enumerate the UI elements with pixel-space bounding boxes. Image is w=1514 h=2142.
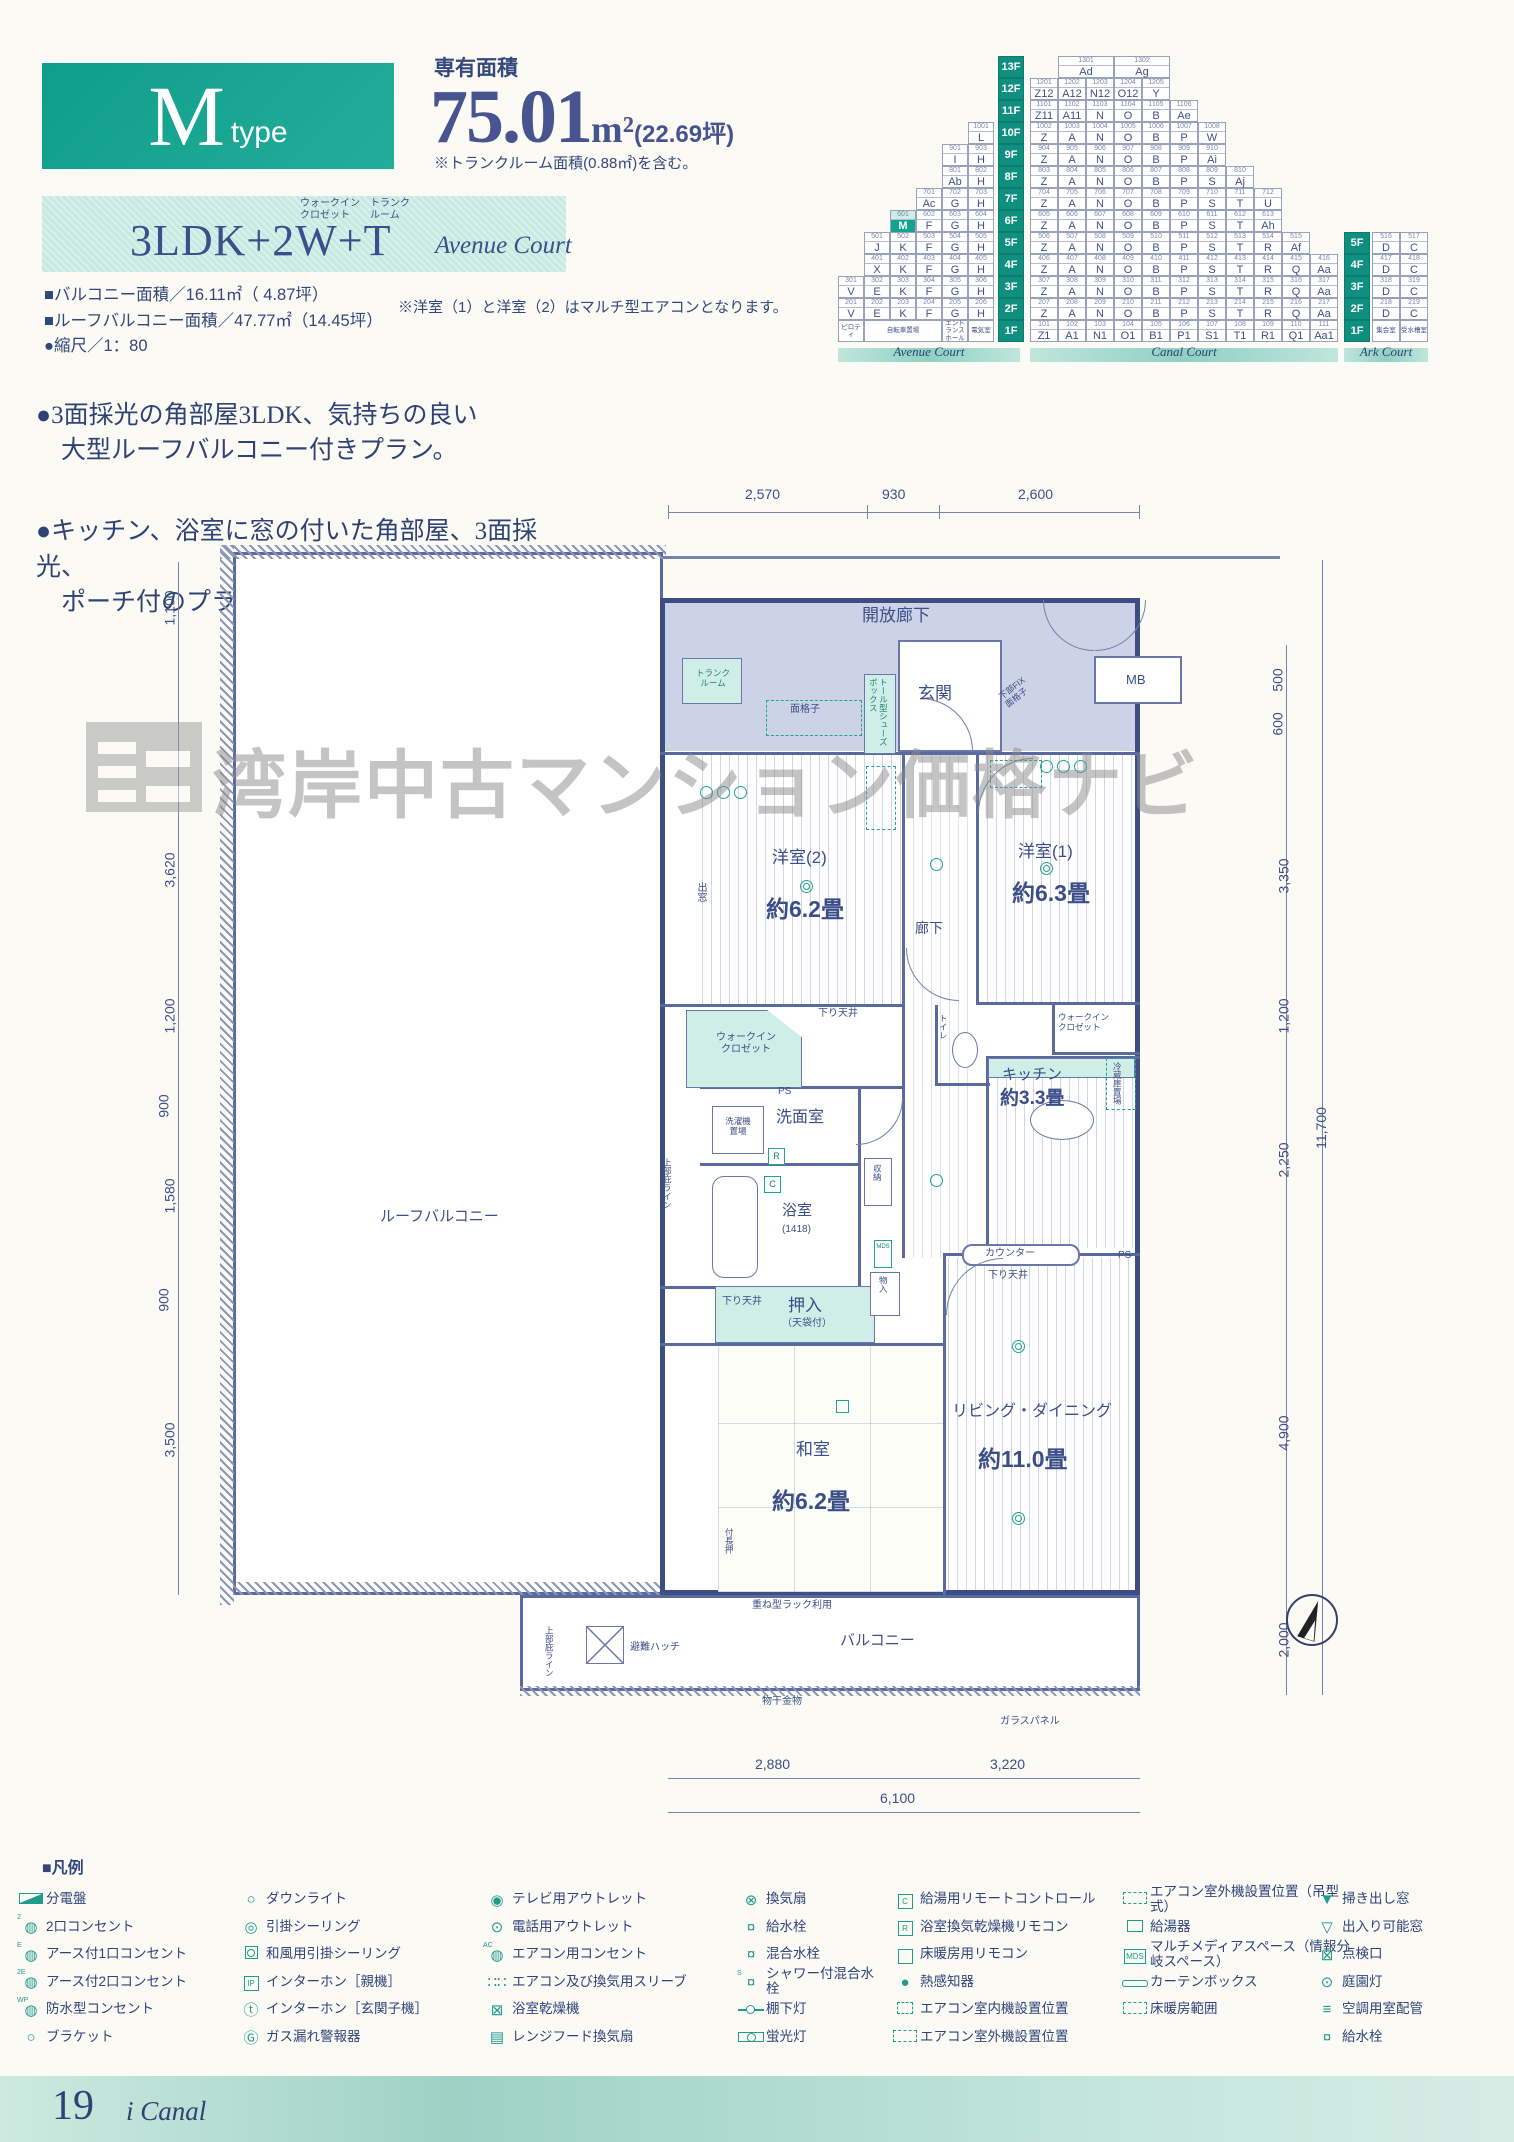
legend-item: ¤給水栓 <box>1312 2024 1452 2052</box>
legend-item: ◎引掛シーリング <box>236 1914 474 1942</box>
legend-item: C給湯用リモートコントロール <box>890 1886 1115 1914</box>
unit-cell-710: 710S <box>1198 188 1226 210</box>
roof-balcony-wall-hatch <box>220 545 234 1605</box>
unit-cell-605: 605Z <box>1030 210 1058 232</box>
label-bedroom2: 洋室(2) <box>772 848 827 868</box>
bathfan-remote-box: R <box>768 1148 785 1165</box>
bathtub <box>712 1176 758 1278</box>
hinan-hatch-box <box>586 1626 624 1664</box>
legend-item: ◍22口コンセント <box>16 1914 226 1942</box>
dim-top-2: 2,600 <box>1018 486 1053 502</box>
unit-cell-410: 410B <box>1142 254 1170 276</box>
legend-item-label: エアコン及び換気用スリーブ <box>512 1975 687 1990</box>
banner-court-label: Avenue Court <box>435 232 572 260</box>
unit-cell-606: 606A <box>1058 210 1086 232</box>
ground-cell: エントランス ホール <box>942 320 968 342</box>
dim-left-2: 1,200 <box>162 998 178 1033</box>
unit-cell-1302: 1302Ag <box>1114 56 1170 78</box>
unit-cell-1301: 1301Ad <box>1058 56 1114 78</box>
hotwater-remote-box: C <box>764 1176 781 1193</box>
legend-item-label: 庭園灯 <box>1342 1975 1383 1990</box>
label-corridor: 廊下 <box>915 920 943 937</box>
inspection-port-icon: ⊠ <box>1312 1946 1342 1964</box>
unit-cell-417: 417D <box>1372 254 1400 276</box>
legend-item: 分電盤 <box>16 1886 226 1914</box>
legend-item-label: ガス漏れ警報器 <box>266 2030 361 2045</box>
unit-cell-304: 304F <box>916 276 942 298</box>
unit-cell-1002: 1002Z <box>1030 122 1058 144</box>
legend-item-label: 和風用引掛シーリング <box>266 1947 401 1962</box>
label-rack-note: 重ね型ラック利用 <box>752 1600 832 1612</box>
unit-cell-301: 301V <box>838 276 864 298</box>
label-trunk-room: トランク ルーム <box>688 668 738 688</box>
unit-cell-206: 206H <box>968 298 994 320</box>
legend-item: ¤混合水栓 <box>736 1941 884 1969</box>
unit-cell-312: 312P <box>1170 276 1198 298</box>
legend-item-label: ダウンライト <box>266 1892 347 1907</box>
label-menkoshi: 面格子 <box>790 704 820 716</box>
outlet-wp-icon: ◍WP <box>16 2001 46 2019</box>
unit-cell-509: 509O <box>1114 232 1142 254</box>
legend-item-label: カーテンボックス <box>1150 1975 1258 1990</box>
unit-cell-512: 512S <box>1198 232 1226 254</box>
bathfan-remote-icon: R <box>890 1918 920 1936</box>
legend-item-label: 出入り可能窓 <box>1342 1920 1423 1935</box>
distribution-board-icon <box>16 1891 46 1908</box>
legend-column-3: ◉テレビ用アウトレット⊙電話用アウトレット◍ACエアコン用コンセント∷∷エアコン… <box>482 1886 730 2051</box>
ac-pipe-icon: ≡ <box>1312 2001 1342 2018</box>
legend-item-label: 換気扇 <box>766 1892 807 1907</box>
unit-cell-411: 411P <box>1170 254 1198 276</box>
label-genkan: 玄関 <box>918 684 952 704</box>
legend-item: ¤Sシャワー付混合水栓 <box>736 1969 884 1997</box>
floor-label-2F: 2F <box>998 298 1024 320</box>
unit-cell-1101: 1101Z11 <box>1030 100 1058 122</box>
unit-type-box: M type <box>42 63 394 169</box>
unit-cell-109: 109R1 <box>1254 320 1282 342</box>
shelf-light-icon <box>736 2001 766 2018</box>
unit-cell-502: 502K <box>890 232 916 254</box>
legend-item-label: レンジフード換気扇 <box>512 2030 634 2045</box>
unit-cell-505: 505H <box>968 232 994 254</box>
legend-item: ⓣインターホン［玄関子機］ <box>236 1996 474 2024</box>
unit-cell-907: 907O <box>1114 144 1142 166</box>
unit-cell-209: 209N <box>1086 298 1114 320</box>
unit-cell-607: 607N <box>1086 210 1114 232</box>
unit-cell-108: 108T1 <box>1226 320 1254 342</box>
legend-item-label: 空調用室配管 <box>1342 2002 1423 2017</box>
water-tap2-icon: ¤ <box>1312 2029 1342 2046</box>
legend-item-label: ブラケット <box>46 2030 114 2045</box>
dim-left-5: 900 <box>156 1288 172 1311</box>
unit-cell-318: 318D <box>1372 276 1400 298</box>
mds-box: MDS <box>874 1240 892 1268</box>
ground-cell: 自転車置場 <box>864 320 942 342</box>
sweep-window-icon: ▼ <box>1312 1891 1342 1908</box>
outlet-e2-icon: ◍2E <box>16 1973 46 1991</box>
unit-cell-516: 516D <box>1372 232 1400 254</box>
label-oshiire-note: （天袋付） <box>782 1318 832 1330</box>
ground-cell: 電気室 <box>968 320 994 342</box>
bath-dryer-icon: ⊠ <box>482 2001 512 2019</box>
unit-cell-506: 506Z <box>1030 232 1058 254</box>
trunk-area-note: ※トランクルーム面積(0.88㎡)を含む。 <box>434 152 697 173</box>
legend-column-2: ○ダウンライト◎引掛シーリング和風用引掛シーリングIPインターホン［親機］ⓣイン… <box>236 1886 474 2051</box>
shower-mixing-tap-icon: ¤S <box>736 1974 766 1991</box>
unit-cell-215: 215R <box>1254 298 1282 320</box>
unit-cell-706: 706N <box>1086 188 1114 210</box>
unit-cell-708: 708B <box>1142 188 1170 210</box>
label-sagari-2: 下り天井 <box>722 1296 762 1308</box>
unit-cell-202: 202E <box>864 298 890 320</box>
area-details: ■バルコニー面積／16.11㎡（ 4.87坪） ■ルーフバルコニー面積／47.7… <box>44 283 383 360</box>
plan-type-text: 3LDK+2W+T <box>130 215 391 266</box>
unit-cell-307: 307Z <box>1030 276 1058 298</box>
ac-outlet-icon: ◍AC <box>482 1946 512 1964</box>
bracket-light-icon: ○ <box>16 2029 46 2046</box>
dim-top-1: 930 <box>882 486 905 502</box>
unit-cell-406: 406Z <box>1030 254 1058 276</box>
unit-cell-802: 802H <box>968 166 994 188</box>
legend-item: ◍2Eアース付2口コンセント <box>16 1969 226 1997</box>
unit-cell-604: 604H <box>968 210 994 232</box>
legend-column-4: ⊗換気扇¤給水栓¤混合水栓¤Sシャワー付混合水栓棚下灯蛍光灯 <box>736 1886 884 2051</box>
label-kitchen-size: 約3.3畳 <box>1000 1088 1064 1111</box>
unit-cell-901: 901I <box>942 144 968 166</box>
unit-cell-705: 705A <box>1058 188 1086 210</box>
watermark-text: 湾岸中古マンション価格ナビ <box>212 726 1200 833</box>
legend-item-label: 混合水栓 <box>766 1947 820 1962</box>
floor-label-8F: 8F <box>998 166 1024 188</box>
label-sagari-1: 下り天井 <box>818 1008 858 1020</box>
legend: ■凡例 分電盤◍22口コンセント◍Eアース付1口コンセント◍2Eアース付2口コン… <box>0 1850 1514 2060</box>
unit-cell-415: 415Q <box>1282 254 1310 276</box>
label-balcony: バルコニー <box>840 1632 915 1650</box>
court-label-canal: Canal Court <box>1030 348 1338 362</box>
legend-item: ◍Eアース付1口コンセント <box>16 1941 226 1969</box>
unit-cell-906: 906N <box>1086 144 1114 166</box>
legend-item: ◍ACエアコン用コンセント <box>482 1941 730 1969</box>
legend-item-label: シャワー付混合水栓 <box>766 1967 884 1997</box>
rangehood-fan-icon: ▤ <box>482 2028 512 2046</box>
legend-item: ¤給水栓 <box>736 1914 884 1942</box>
legend-item-label: インターホン［玄関子機］ <box>266 2002 428 2017</box>
washitsu-floor <box>718 1346 943 1592</box>
unit-cell-203: 203K <box>890 298 916 320</box>
fan-icon: ⊗ <box>736 1891 766 1909</box>
unit-cell-904: 904Z <box>1030 144 1058 166</box>
unit-cell-1005: 1005O <box>1114 122 1142 144</box>
dim-bottom-1: 3,220 <box>990 1756 1025 1772</box>
dim-right-3: 1,200 <box>1276 998 1292 1033</box>
unit-cell-409: 409O <box>1114 254 1142 276</box>
ruby-walkin-closet: ウォークイン クロゼット <box>300 198 360 221</box>
tv-outlet-icon: ◉ <box>482 1891 512 1909</box>
unit-cell-414: 414R <box>1254 254 1282 276</box>
gas-alarm-icon: Ⓖ <box>236 2027 266 2048</box>
unit-cell-309: 309N <box>1086 276 1114 298</box>
legend-item-label: エアコン室外機設置位置 <box>920 2030 1069 2045</box>
legend-title: ■凡例 <box>42 1854 84 1878</box>
outlet-2-icon: ◍2 <box>16 1918 46 1936</box>
unit-cell-210: 210O <box>1114 298 1142 320</box>
unit-cell-803: 803Z <box>1030 166 1058 188</box>
ruby-trunk-room: トランク ルーム <box>370 198 410 221</box>
unit-cell-905: 905A <box>1058 144 1086 166</box>
legend-item: 床暖房用リモコン <box>890 1941 1115 1969</box>
unit-cell-308: 308A <box>1058 276 1086 298</box>
unit-cell-910: 910Ai <box>1198 144 1226 166</box>
label-hinan-hatch: 避難ハッチ <box>630 1642 680 1654</box>
page-number: 19 <box>52 2082 94 2130</box>
feature-bullet-1: ●3面採光の角部屋3LDK、気持ちの良い 大型ルーフバルコニー付きプラン。 <box>36 398 576 469</box>
unit-cell-517: 517C <box>1400 232 1428 254</box>
label-washitsu: 和室 <box>796 1440 830 1460</box>
unit-cell-601: 601M <box>890 210 916 232</box>
label-bath-size: (1418) <box>782 1224 811 1236</box>
legend-item-label: 給湯器 <box>1150 1920 1191 1935</box>
dim-left-4: 1,580 <box>162 1178 178 1213</box>
ac-sleeve-icon: ∷∷ <box>482 1973 512 1991</box>
heat-sensor-icon: ● <box>890 1974 920 1991</box>
building-position-grid: 13F12F11F10F9F8F7F6F5F4F3F2F1F1001L901I9… <box>812 56 1472 392</box>
unit-cell-903: 903H <box>968 144 994 166</box>
label-ps-2: PS <box>1118 1250 1131 1262</box>
legend-item: ○ブラケット <box>16 2024 226 2052</box>
unit-type-word: type <box>231 116 288 150</box>
area-number: 75.01 <box>430 75 591 159</box>
label-kitchen: キッチン <box>1002 1066 1062 1084</box>
label-wic-left: ウォークイン クロゼット <box>706 1032 786 1056</box>
legend-column-1: 分電盤◍22口コンセント◍Eアース付1口コンセント◍2Eアース付2口コンセント◍… <box>16 1886 226 2051</box>
label-wic-right: ウォークイン クロゼット <box>1058 1012 1109 1032</box>
unit-cell-808: 808P <box>1170 166 1198 188</box>
legend-item-label: 蛍光灯 <box>766 2030 807 2045</box>
legend-item: ⊙電話用アウトレット <box>482 1914 730 1942</box>
legend-item-label: 浴室換気乾燥機リモコン <box>920 1920 1069 1935</box>
unit-cell-310: 310O <box>1114 276 1142 298</box>
legend-item: ∷∷エアコン及び換気用スリーブ <box>482 1969 730 1997</box>
unit-cell-204: 204F <box>916 298 942 320</box>
unit-cell-909: 909P <box>1170 144 1198 166</box>
label-shuno: 収納 <box>872 1164 882 1181</box>
dim-left-3: 900 <box>156 1094 172 1117</box>
unit-cell-216: 216Q <box>1282 298 1310 320</box>
roof-balcony-wall-hatch-bottom <box>233 1582 663 1595</box>
unit-cell-806: 806O <box>1114 166 1142 188</box>
ceiling-hook-jp-icon <box>236 1946 266 1963</box>
unit-cell-908: 908B <box>1142 144 1170 166</box>
label-monoire: 物入 <box>878 1276 888 1293</box>
legend-item: ▤レンジフード換気扇 <box>482 2024 730 2052</box>
ac-outdoor-pos-icon <box>890 2029 920 2046</box>
legend-column-7: ▼掃き出し窓▽出入り可能窓⊠点検口⊙庭園灯≡空調用室配管¤給水栓 <box>1312 1886 1452 2051</box>
label-living-size: 約11.0畳 <box>978 1446 1068 1474</box>
legend-item: ⊗換気扇 <box>736 1886 884 1914</box>
unit-cell-305: 305G <box>942 276 968 298</box>
legend-item: 棚下灯 <box>736 1996 884 2024</box>
label-ps-1: PS <box>778 1086 791 1098</box>
legend-item-label: 熱感知器 <box>920 1975 974 1990</box>
dim-left-0: 1,100 <box>162 590 178 625</box>
unit-cell-514: 514R <box>1254 232 1282 254</box>
unit-cell-107: 107S1 <box>1198 320 1226 342</box>
unit-cell-1008: 1008W <box>1198 122 1226 144</box>
label-open-corridor: 開放廊下 <box>862 606 930 626</box>
tel-outlet-icon: ⊙ <box>482 1918 512 1936</box>
unit-cell-712: 712U <box>1254 188 1282 210</box>
dim-right-7: 2,000 <box>1276 1622 1292 1657</box>
label-roof-balcony: ルーフバルコニー <box>380 1208 499 1226</box>
legend-item-label: 点検口 <box>1342 1947 1383 1962</box>
unit-cell-319: 319C <box>1400 276 1428 298</box>
unit-cell-504: 504G <box>942 232 968 254</box>
unit-cell-1001: 1001L <box>968 122 994 144</box>
unit-cell-508: 508N <box>1086 232 1114 254</box>
unit-cell-1202: 1202A12 <box>1058 78 1086 100</box>
unit-cell-303: 303K <box>890 276 916 298</box>
outlet-e1-icon: ◍E <box>16 1946 46 1964</box>
floor-label-7F: 7F <box>998 188 1024 210</box>
unit-cell-211: 211B <box>1142 298 1170 320</box>
unit-cell-205: 205G <box>942 298 968 320</box>
unit-cell-214: 214T <box>1226 298 1254 320</box>
unit-cell-404: 404G <box>942 254 968 276</box>
legend-item: 蛍光灯 <box>736 2024 884 2052</box>
legend-item: エアコン室内機設置位置 <box>890 1996 1115 2024</box>
legend-item: ●熱感知器 <box>890 1969 1115 1997</box>
unit-cell-704: 704Z <box>1030 188 1058 210</box>
legend-item-label: 浴室乾燥機 <box>512 2002 580 2017</box>
unit-cell-106: 106P1 <box>1170 320 1198 342</box>
area-unit: m² <box>591 109 634 151</box>
dim-left-1: 3,620 <box>162 852 178 887</box>
label-living: リビング・ダイニング <box>952 1402 1112 1421</box>
garden-light-icon: ⊙ <box>1312 1973 1342 1991</box>
legend-item-label: インターホン［親機］ <box>266 1975 401 1990</box>
legend-item: ◉テレビ用アウトレット <box>482 1886 730 1914</box>
north-compass <box>1286 1594 1338 1646</box>
dim-right-0: 500 <box>1270 668 1286 691</box>
unit-cell-1106: 1106Ae <box>1170 100 1198 122</box>
unit-cell-416: 416Aa <box>1310 254 1338 276</box>
unit-cell-418: 418C <box>1400 254 1428 276</box>
unit-cell-515: 515Af <box>1282 232 1310 254</box>
legend-item: ◍WP防水型コンセント <box>16 1996 226 2024</box>
water-tap-icon: ¤ <box>736 1919 766 1936</box>
unit-cell-807: 807B <box>1142 166 1170 188</box>
unit-cell-105: 105B1 <box>1142 320 1170 342</box>
legend-item: ▼掃き出し窓 <box>1312 1886 1452 1914</box>
floor-label-13F: 13F <box>998 56 1024 78</box>
unit-cell-702: 702G <box>942 188 968 210</box>
unit-cell-405: 405H <box>968 254 994 276</box>
label-counter: カウンター <box>985 1248 1035 1260</box>
unit-cell-804: 804A <box>1058 166 1086 188</box>
ark-ground-cell: 受水槽室 <box>1400 320 1428 342</box>
unit-cell-1004: 1004N <box>1086 122 1114 144</box>
roof-balcony-area <box>233 552 663 1595</box>
unit-cell-317: 317Aa <box>1310 276 1338 298</box>
unit-cell-805: 805N <box>1086 166 1114 188</box>
legend-item-label: アース付1口コンセント <box>46 1947 187 1962</box>
unit-cell-1203: 1203N12 <box>1086 78 1114 100</box>
court-label-avenue: Avenue Court <box>838 348 1020 362</box>
toilet-bowl <box>952 1032 978 1068</box>
unit-cell-212: 212P <box>1170 298 1198 320</box>
legend-item-label: アース付2口コンセント <box>46 1975 187 1990</box>
downlight-icon: ○ <box>236 1891 266 1908</box>
unit-cell-407: 407A <box>1058 254 1086 276</box>
legend-item-label: 棚下灯 <box>766 2002 807 2017</box>
unit-cell-1102: 1102A11 <box>1058 100 1086 122</box>
legend-item-label: 床暖房範囲 <box>1150 2002 1218 2017</box>
unit-cell-1201: 1201Z12 <box>1030 78 1058 100</box>
unit-cell-510: 510B <box>1142 232 1170 254</box>
legend-item-label: 防水型コンセント <box>46 2002 154 2017</box>
area-tsubo: (22.69坪) <box>634 121 734 148</box>
floorheat-remote-icon <box>890 1946 920 1964</box>
label-bath: 浴室 <box>782 1202 812 1220</box>
unit-cell-408: 408N <box>1086 254 1114 276</box>
unit-cell-311: 311B <box>1142 276 1170 298</box>
ark-floor-label-4F: 4F <box>1344 254 1370 276</box>
unit-cell-1104: 1104O <box>1114 100 1142 122</box>
dim-top-0: 2,570 <box>745 486 780 502</box>
unit-cell-314: 314T <box>1226 276 1254 298</box>
legend-item-label: テレビ用アウトレット <box>512 1892 647 1907</box>
unit-cell-208: 208A <box>1058 298 1086 320</box>
legend-item-label: エアコン用コンセント <box>512 1947 647 1962</box>
unit-cell-217: 217Aa <box>1310 298 1338 320</box>
unit-cell-1105: 1105B <box>1142 100 1170 122</box>
unit-cell-315: 315R <box>1254 276 1282 298</box>
legend-item-label: 給水栓 <box>1342 2030 1383 2045</box>
legend-item: ⊠浴室乾燥機 <box>482 1996 730 2024</box>
roof-balcony-wall-hatch-top <box>220 545 666 559</box>
dim-right-2: 3,350 <box>1276 858 1292 893</box>
legend-item: ▽出入り可能窓 <box>1312 1914 1452 1942</box>
intercom-main-icon: IP <box>236 1973 266 1991</box>
floor-label-11F: 11F <box>998 100 1024 122</box>
unit-cell-711: 711T <box>1226 188 1254 210</box>
ceiling-hook-icon: ◎ <box>236 1918 266 1936</box>
unit-cell-302: 302E <box>864 276 890 298</box>
unit-cell-612: 612T <box>1226 210 1254 232</box>
label-washer: 洗濯機 置場 <box>718 1116 758 1136</box>
unit-cell-1007: 1007P <box>1170 122 1198 144</box>
unit-cell-501: 501J <box>864 232 890 254</box>
floor-label-4F: 4F <box>998 254 1024 276</box>
legend-item-label: 2口コンセント <box>46 1920 135 1935</box>
unit-cell-103: 103N1 <box>1086 320 1114 342</box>
unit-cell-403: 403F <box>916 254 942 276</box>
label-oshiire: 押入 <box>788 1296 822 1316</box>
ark-floor-label-1F: 1F <box>1344 320 1370 342</box>
unit-cell-602: 602F <box>916 210 942 232</box>
dim-right-1: 600 <box>1270 712 1286 735</box>
label-fridge: 冷蔵庫置場 <box>1112 1062 1122 1110</box>
unit-cell-503: 503F <box>916 232 942 254</box>
balcony-edge-hatch <box>520 1686 1140 1696</box>
legend-item: ⊙庭園灯 <box>1312 1969 1452 1997</box>
label-sagari-3: 下り天井 <box>988 1270 1028 1282</box>
exclusive-area-value: 75.01m²(22.69坪) <box>430 74 734 161</box>
unit-cell-608: 608O <box>1114 210 1142 232</box>
unit-cell-1103: 1103N <box>1086 100 1114 122</box>
legend-item: R浴室換気乾燥機リモコン <box>890 1914 1115 1942</box>
ark-floor-label-2F: 2F <box>1344 298 1370 320</box>
